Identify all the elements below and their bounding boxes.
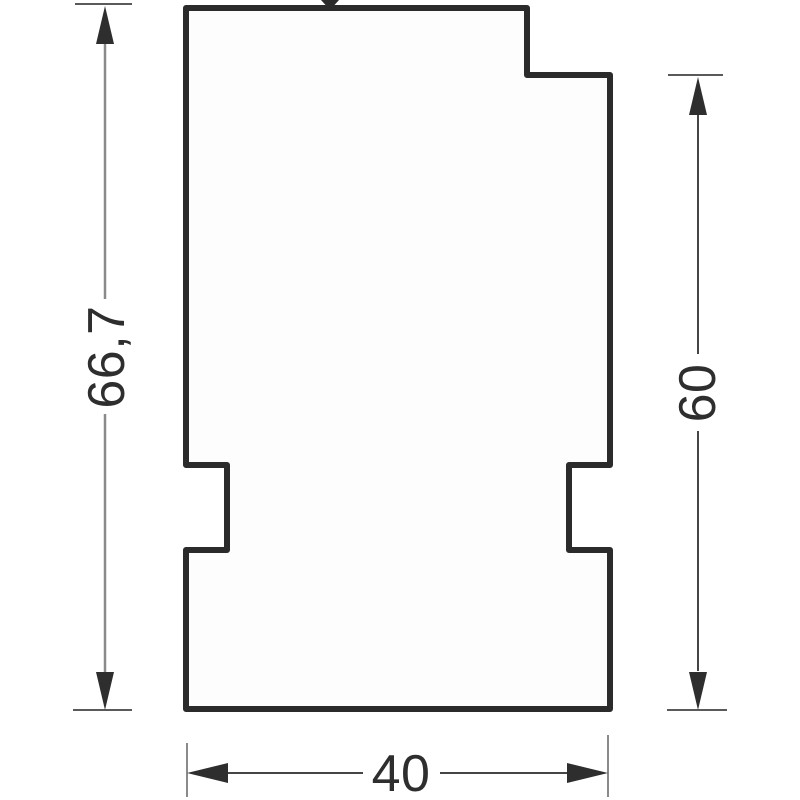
part-outline bbox=[186, 8, 610, 709]
technical-drawing-canvas: 66,7 60 40 bbox=[0, 0, 800, 800]
dimension-value-right: 60 bbox=[669, 364, 727, 423]
dimension-value-left: 66,7 bbox=[78, 305, 136, 408]
arrow-down-icon bbox=[96, 672, 114, 710]
dimension-drawing: 66,7 60 40 bbox=[0, 0, 800, 800]
arrow-right-icon bbox=[567, 763, 608, 783]
arrow-up-icon bbox=[689, 77, 707, 115]
arrow-up-icon bbox=[96, 6, 114, 44]
dimension-bottom-width: 40 bbox=[187, 735, 608, 800]
dimension-left-height: 66,7 bbox=[73, 4, 136, 710]
dimension-right-height: 60 bbox=[667, 75, 727, 710]
arrow-left-icon bbox=[187, 763, 228, 783]
dimension-value-bottom: 40 bbox=[372, 745, 431, 800]
arrow-down-icon bbox=[689, 672, 707, 710]
